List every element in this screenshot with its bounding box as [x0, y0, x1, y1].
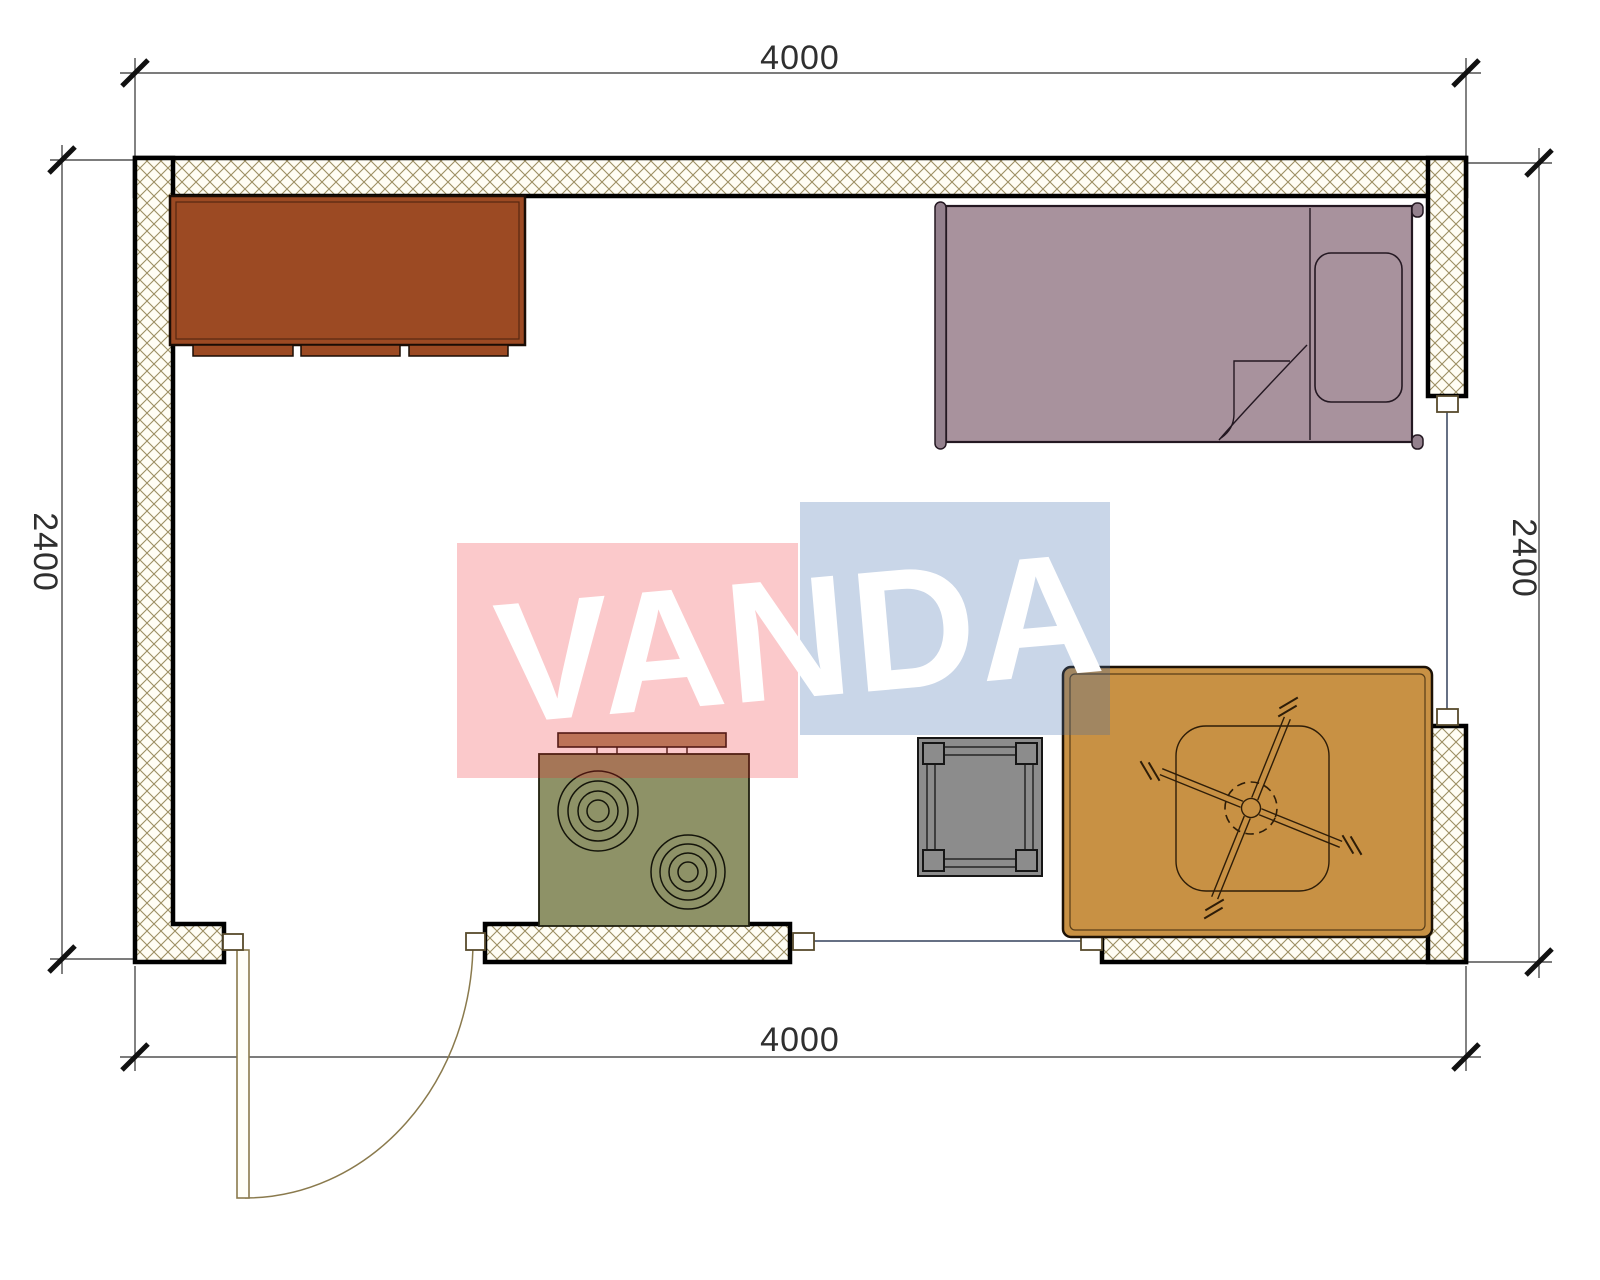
cabinet-foot-middle [301, 345, 400, 356]
jamb-right-window-top [1437, 396, 1458, 412]
table [918, 738, 1042, 876]
watermark: VANDA [457, 502, 1111, 778]
bed-post-top-right [1412, 203, 1423, 217]
rug-body [1063, 667, 1432, 937]
cabinet-foot-left [193, 345, 293, 356]
wall-right-lower [1428, 726, 1466, 962]
wall-right-upper [1428, 158, 1466, 396]
jamb-stove-wall-right [793, 933, 814, 950]
door-jamb-left [223, 934, 243, 950]
wall-bottom-left-segment [485, 924, 790, 962]
bed-post-bottom-right [1412, 435, 1423, 449]
bed-pillow [1315, 253, 1402, 402]
wall-top [135, 158, 1466, 196]
rug [1063, 652, 1432, 964]
cabinet-foot-right [409, 345, 508, 356]
dim-label-left: 2400 [26, 512, 64, 592]
dim-label-bottom: 4000 [760, 1021, 840, 1059]
dim-label-right: 2400 [1505, 518, 1543, 598]
bed [935, 202, 1423, 449]
dim-label-top: 4000 [760, 39, 840, 77]
door-swing-arc [245, 941, 473, 1198]
table-leg-top-left [923, 743, 944, 764]
cabinet-body [170, 196, 525, 345]
floor-plan-canvas: 4000 4000 2400 2400 [0, 0, 1600, 1280]
jamb-stove-wall-left [466, 933, 485, 950]
floor-plan-drawing: 4000 4000 2400 2400 [0, 0, 1600, 1280]
table-leg-top-right [1016, 743, 1037, 764]
door-leaf [237, 950, 249, 1198]
table-leg-bottom-left [923, 850, 944, 871]
cabinet [170, 196, 525, 356]
door [237, 941, 473, 1198]
bed-headboard [935, 202, 946, 449]
table-leg-bottom-right [1016, 850, 1037, 871]
jamb-right-window-bottom [1437, 709, 1458, 725]
